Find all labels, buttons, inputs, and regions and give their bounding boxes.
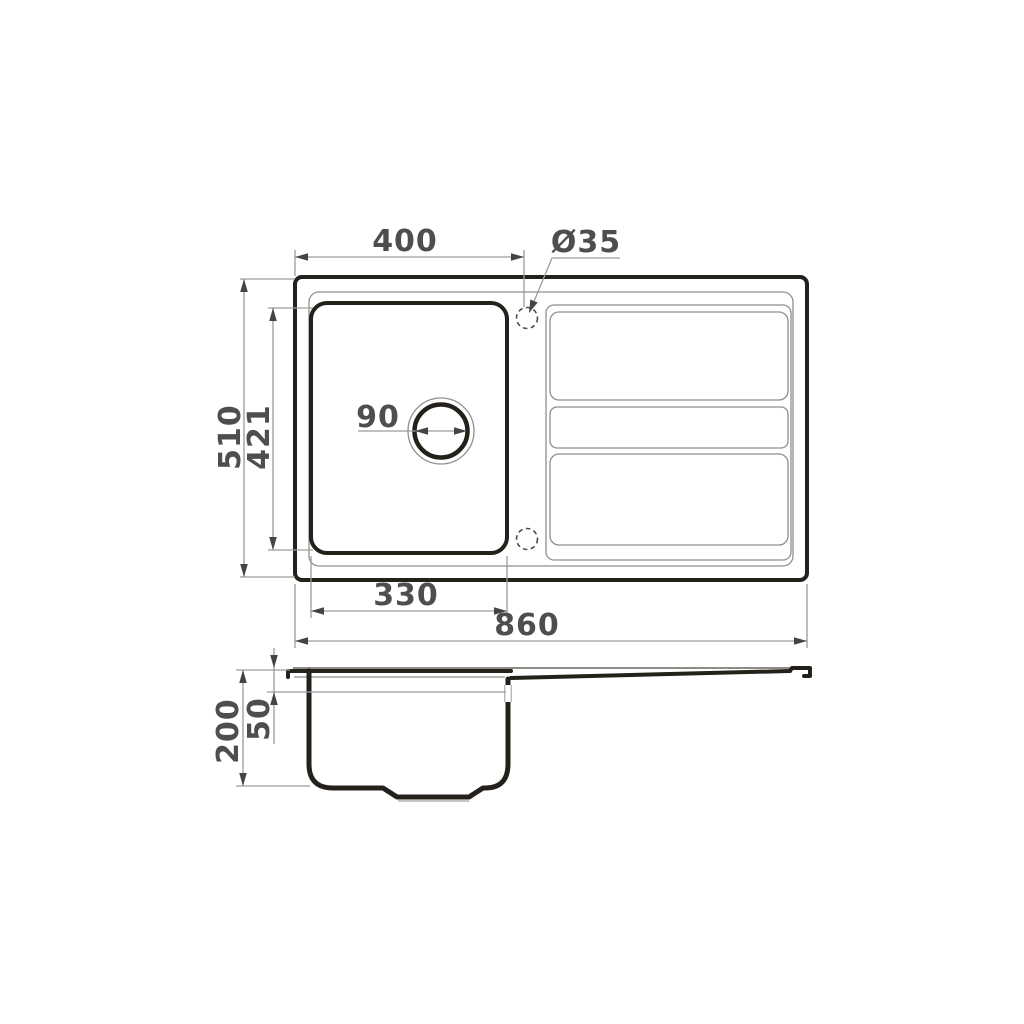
arrowhead [311, 607, 324, 615]
top-view: 400 Ø35 510 421 [213, 224, 807, 648]
tap-hole-bottom-icon [517, 529, 538, 550]
drawing-page: 400 Ø35 510 421 [0, 0, 1024, 1024]
arrowhead [239, 670, 247, 683]
dim-330: 330 [311, 556, 507, 618]
arrowhead [240, 564, 248, 577]
dim-label-860: 860 [494, 608, 560, 643]
dim-label-90: 90 [356, 400, 400, 435]
arrowhead [240, 279, 248, 292]
drainboard-groove-bottom [550, 454, 788, 545]
dim-421: 421 [242, 308, 313, 550]
sink-technical-drawing: 400 Ø35 510 421 [0, 0, 1024, 1024]
dim-label-330: 330 [373, 578, 439, 613]
arrowhead [529, 300, 538, 314]
dim-label-421: 421 [242, 404, 277, 470]
arrowhead [270, 655, 278, 668]
arrowhead [269, 537, 277, 550]
drainboard-slope [511, 671, 790, 678]
dim-label-200: 200 [211, 698, 246, 764]
rim-left-section [288, 671, 511, 677]
rim-right-hook [790, 668, 810, 676]
sink-body-section [288, 668, 810, 801]
arrowhead [794, 637, 807, 645]
arrowhead [511, 253, 524, 261]
bowl-outline [311, 303, 507, 553]
dim-label-50: 50 [242, 697, 277, 741]
dim-400: 400 [295, 224, 524, 307]
dim-label-400: 400 [372, 224, 438, 259]
drainboard-groove-middle [550, 407, 788, 448]
arrowhead [239, 773, 247, 786]
bowl-section-profile [309, 671, 508, 797]
dim-860: 860 [295, 584, 807, 648]
drainboard-outline [546, 305, 791, 560]
dim-tap-hole-diameter: Ø35 [529, 225, 621, 313]
dim-label-o35: Ø35 [551, 225, 621, 260]
overflow-notch [505, 685, 512, 702]
drainboard-groove-top [550, 312, 788, 400]
arrowhead [295, 637, 308, 645]
tap-hole-top-icon [517, 308, 538, 329]
arrowhead [295, 253, 308, 261]
dim-50: 50 [242, 648, 506, 744]
side-view: 200 50 [211, 648, 810, 801]
arrowhead [269, 308, 277, 321]
leader-line [530, 258, 620, 311]
